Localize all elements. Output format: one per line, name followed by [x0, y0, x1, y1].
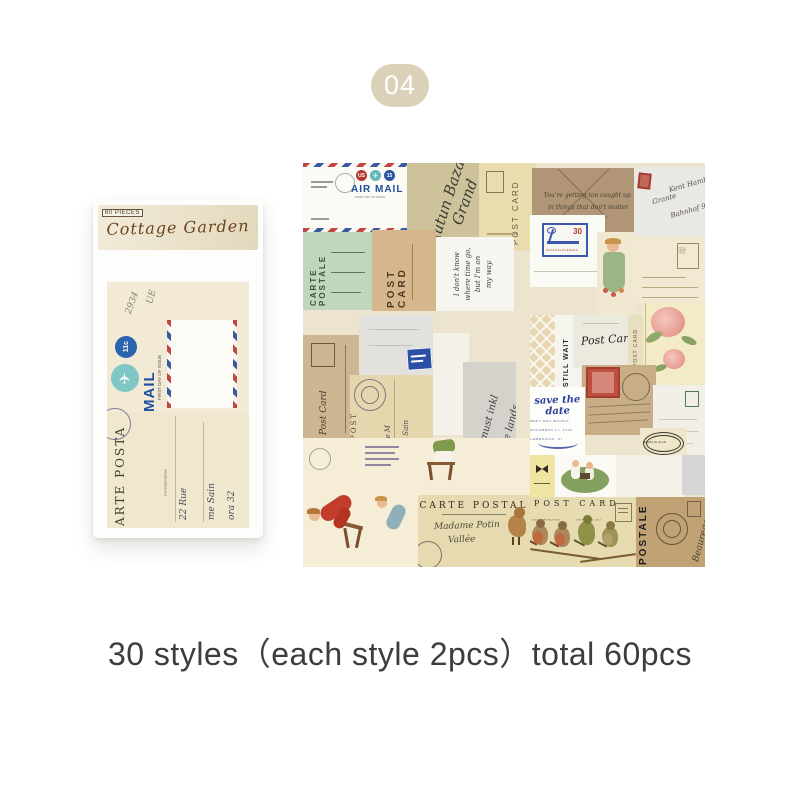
- handwriting: You're getting too caught up: [544, 192, 631, 199]
- label-text-bar: [411, 360, 423, 363]
- tile-airmail-envelope: US ✈ 15 AIR MAIL FIRST DAY OF ISSUE: [303, 163, 407, 232]
- product-image: 04 60 PIECES Cottage Garden 2934 UE 11c …: [0, 0, 800, 800]
- airmail-stripe: [233, 320, 237, 408]
- stamp-box: PLACE STAMP HERE: [677, 243, 699, 269]
- address-line: [331, 292, 361, 293]
- airmail-envelope-print: [167, 320, 237, 408]
- address-line: [311, 186, 327, 188]
- flower: [603, 288, 608, 293]
- tile-carte-postale-green: CARTE POSTALE: [303, 232, 372, 310]
- postcard-label: Post Card: [581, 331, 631, 348]
- tile-kids-reading: [555, 455, 616, 498]
- text-bar: [365, 458, 399, 460]
- airmail-stripe: [167, 320, 171, 408]
- carte-postale-print: ARTE POSTA Correspondance 22 Rue me Sain…: [107, 412, 249, 528]
- branch: [530, 548, 600, 560]
- package-label: 60 PIECES Cottage Garden: [98, 205, 258, 250]
- divider: [345, 345, 346, 433]
- purple-text-block: [365, 444, 401, 470]
- flower: [611, 292, 616, 297]
- postale-label: POSTALE: [638, 499, 649, 565]
- blue-dress: [384, 502, 408, 532]
- print-handwriting: me Sain: [207, 424, 217, 520]
- chick-head: [514, 507, 525, 518]
- package-title: Cottage Garden: [98, 216, 258, 239]
- address-line: [311, 218, 329, 220]
- child-blue-illustration: [373, 496, 417, 562]
- cancel-line: [588, 403, 650, 407]
- girl-red-illustration: [309, 484, 375, 560]
- leaf: [680, 334, 697, 347]
- stamp-box: [486, 171, 504, 193]
- first-day-text: FIRST DAY OF ISSUE: [158, 340, 163, 400]
- print-handwriting: 2934: [124, 291, 141, 316]
- child-desk-illustration: [425, 438, 481, 484]
- mail-vertical-text: MAIL: [141, 326, 158, 412]
- stool-leg: [448, 464, 453, 480]
- pieces-tag: 60 PIECES: [102, 209, 143, 217]
- tile-red-stamp-kraft: [582, 365, 656, 435]
- postcard-label: POST CARD: [633, 319, 639, 367]
- chick-illustration: [504, 507, 530, 547]
- stamp-inner: [639, 175, 649, 188]
- chick-leg: [512, 537, 514, 545]
- value-circle: 15: [384, 170, 395, 181]
- text-bar: [365, 464, 391, 466]
- chick-leg: [518, 537, 520, 545]
- first-day-text: FIRST DAY OF ISSUE: [355, 196, 385, 199]
- stool-leg: [343, 528, 349, 548]
- handwriting: Vallée: [448, 535, 476, 546]
- label-line: [534, 483, 550, 484]
- address-line: [331, 272, 365, 273]
- note-line: but I'm on: [473, 237, 484, 311]
- handwriting: Grante: [651, 192, 677, 206]
- child-hair: [605, 238, 621, 244]
- product-package: 60 PIECES Cottage Garden 2934 UE 11c ✈ M…: [93, 200, 263, 538]
- address-line: [311, 181, 333, 183]
- tile-script-postcard: Post Card: [573, 315, 631, 368]
- note-line: where time go,: [463, 237, 474, 311]
- postmark-icon: [309, 448, 331, 470]
- arlatte-label: ARLATTE & Co: [643, 441, 666, 444]
- step-badge: 04: [371, 64, 429, 107]
- kid-figure: [571, 465, 580, 479]
- divider: [534, 271, 600, 272]
- postmark-inner: [663, 520, 681, 538]
- stamp-box: [311, 343, 335, 367]
- kid-head: [572, 460, 579, 467]
- stamp-box-text: PLACE STAMP HERE: [678, 247, 686, 254]
- laurel-swash: [538, 437, 578, 449]
- postmark-icon: [622, 373, 650, 401]
- stamp-box: [685, 391, 699, 407]
- label-text-bar: [411, 355, 426, 358]
- tile-birds-postcard: POST CARD FOR COMMUNICATION THE ADDRESS …: [530, 497, 636, 567]
- handwriting: Madame Potin: [434, 520, 500, 532]
- child-hair: [307, 508, 320, 514]
- stamp-box: [687, 501, 701, 517]
- tile-carte-postal: CARTE POSTAL Madame Potin Vallée: [418, 495, 530, 567]
- child-hair: [375, 496, 387, 501]
- crease-line: [369, 329, 419, 330]
- tile-postcard-lines: PLACE STAMP HERE: [634, 237, 705, 303]
- cancel-line: [588, 411, 650, 415]
- stamp-box: [615, 503, 632, 522]
- child-dress: [603, 252, 625, 292]
- handwriting: Kent Hamburg: [668, 172, 705, 194]
- us-label: US: [358, 173, 365, 179]
- tile-save-the-date: save the date MARY AND WILDER NOVEMBER 1…: [530, 387, 585, 457]
- carte-postale-vertical: ARTE POSTA: [113, 418, 127, 526]
- bridge-deck: [547, 241, 579, 244]
- tile-gray-corner: [682, 455, 705, 495]
- stamp-country: ČESKOSLOVENSKO: [546, 249, 578, 252]
- print-line: [583, 323, 619, 324]
- postage-stamp-icon: [586, 367, 620, 398]
- tile-stamp-card: 30 ČESKOSLOVENSKO: [530, 215, 605, 287]
- divider: [203, 422, 204, 522]
- address-line: [331, 252, 365, 253]
- tile-postcard-tan: POST CARD: [372, 230, 436, 311]
- note-line: I don't know: [452, 237, 463, 311]
- address-line: [642, 287, 698, 288]
- collage-sheet-grid: US ✈ 15 AIR MAIL FIRST DAY OF ISSUE Autu…: [303, 163, 705, 567]
- tile-white-envelope: Grante Kent Hamburg Bahnhof 9: [634, 167, 705, 238]
- chick-body: [508, 515, 526, 537]
- subtitle-bar: [442, 514, 506, 515]
- text-bar: [365, 452, 395, 454]
- kid-head: [586, 462, 593, 469]
- bridge-tower: [547, 227, 556, 234]
- cancel-line: [588, 419, 648, 423]
- print-handwriting: ora 32: [227, 420, 237, 520]
- airmail-stripe: [303, 163, 407, 167]
- stamp-inner: [592, 372, 614, 393]
- correspondance-text: Correspondance: [164, 454, 168, 496]
- airplane-icon: ✈: [370, 170, 381, 181]
- divider: [412, 244, 413, 300]
- butterfly-icon-wing: [542, 465, 548, 473]
- tile-butterfly-label: [530, 455, 554, 497]
- leaf: [644, 329, 664, 345]
- address-line: [487, 233, 517, 235]
- postage-stamp-icon: [637, 172, 652, 189]
- postmark-inner: [361, 386, 379, 404]
- airmail-label-icon: [406, 347, 432, 371]
- stool-leg: [355, 528, 362, 548]
- text-bar: [365, 446, 399, 448]
- handwriting: in things that don't matter: [548, 204, 629, 211]
- caption: 30 styles（each style 2pcs）total 60pcs: [0, 629, 800, 675]
- flower: [619, 288, 624, 293]
- airplane-circle: ✈: [111, 364, 139, 392]
- tile-white-strip: [616, 455, 685, 498]
- print-handwriting: 22 Rue: [179, 420, 189, 520]
- divider: [175, 416, 176, 522]
- value-label: 15: [387, 173, 393, 179]
- package-print: 2934 UE 11c ✈ MAIL FIRST DAY OF ISSUE AR…: [107, 282, 249, 528]
- address-line: [642, 297, 698, 298]
- airplane-icon: ✈: [116, 372, 133, 384]
- air-mail-title: AIR MAIL: [351, 184, 403, 195]
- postage-circle: 11c: [115, 336, 137, 358]
- stamp-box-line: [618, 512, 628, 513]
- postcard-label: POST CARD: [386, 234, 408, 308]
- handwriting: Bahnhof 9: [670, 202, 705, 220]
- carte-postale-label: CARTE POSTALE: [309, 236, 327, 306]
- still-wait-label: I STILL WAIT: [563, 321, 570, 393]
- address-line: [659, 419, 697, 420]
- step-badge-label: 04: [384, 70, 416, 101]
- stool-leg: [428, 464, 433, 480]
- tile-postale-kraft: POSTALE Beauregard: [636, 497, 705, 567]
- crease-line: [369, 345, 413, 346]
- postmark-icon: [418, 541, 442, 567]
- note-line: my way.: [484, 237, 495, 311]
- postcard-label: Post Card: [319, 371, 329, 435]
- print-handwriting: UE: [145, 289, 158, 305]
- address-line: [642, 277, 686, 278]
- us-circle: US: [356, 170, 367, 181]
- tile-handwritten-note: I don't know where time go, but I'm on m…: [436, 237, 514, 311]
- stamp-value: 30: [573, 227, 582, 236]
- czech-stamp-icon: 30 ČESKOSLOVENSKO: [542, 223, 588, 257]
- stool-seat: [427, 462, 455, 465]
- airplane-glyph: ✈: [373, 172, 379, 180]
- postcard-title: POST CARD: [534, 499, 620, 508]
- book: [580, 473, 590, 479]
- postage-value: 11c: [123, 341, 130, 352]
- stamp-box-line: [618, 508, 628, 509]
- tile-child-illustration: [597, 232, 635, 318]
